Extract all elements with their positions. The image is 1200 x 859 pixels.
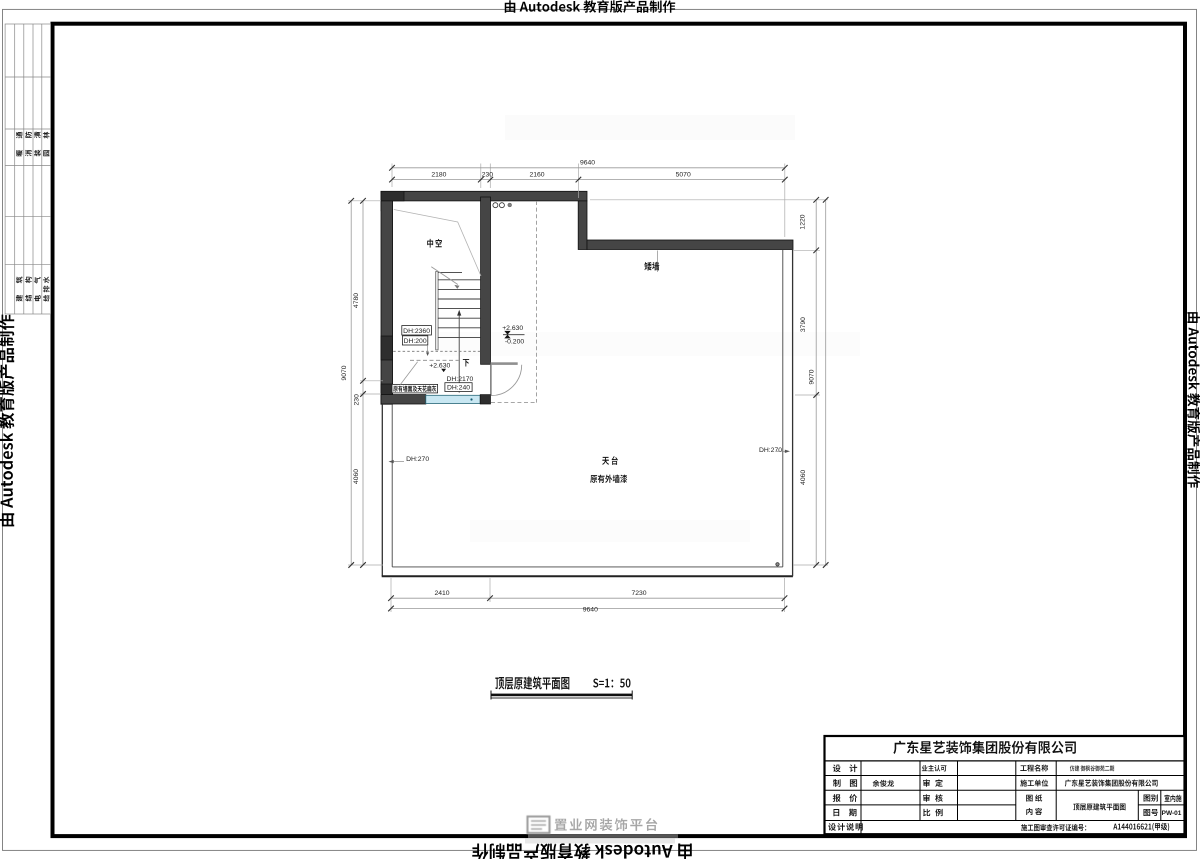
svg-text:1220: 1220 [800, 214, 807, 229]
svg-text:2410: 2410 [434, 590, 449, 597]
svg-text:+2.630: +2.630 [429, 363, 450, 370]
svg-text:2180: 2180 [431, 171, 446, 178]
svg-text:230: 230 [482, 171, 494, 178]
svg-text:4060: 4060 [800, 470, 807, 485]
svg-text:4780: 4780 [353, 293, 360, 308]
svg-text:230: 230 [354, 394, 361, 406]
svg-text:DH:2170: DH:2170 [446, 376, 473, 383]
svg-text:DH:2360: DH:2360 [403, 328, 430, 335]
svg-text:9640: 9640 [580, 160, 595, 167]
svg-text:DH:270: DH:270 [759, 447, 782, 454]
svg-text:7230: 7230 [631, 590, 646, 597]
svg-text:5070: 5070 [676, 171, 691, 178]
svg-text:DH:200: DH:200 [404, 338, 427, 345]
svg-text:-0.200: -0.200 [505, 338, 524, 345]
svg-text:3790: 3790 [800, 317, 807, 332]
svg-text:9070: 9070 [809, 369, 816, 384]
svg-text:4060: 4060 [353, 469, 360, 484]
svg-text:9070: 9070 [341, 365, 348, 380]
svg-text:DH:240: DH:240 [447, 385, 470, 392]
svg-text:PW-01: PW-01 [1162, 810, 1182, 817]
svg-text:DH:270: DH:270 [406, 456, 429, 463]
svg-text:9640: 9640 [583, 606, 598, 613]
svg-text:2160: 2160 [529, 171, 544, 178]
